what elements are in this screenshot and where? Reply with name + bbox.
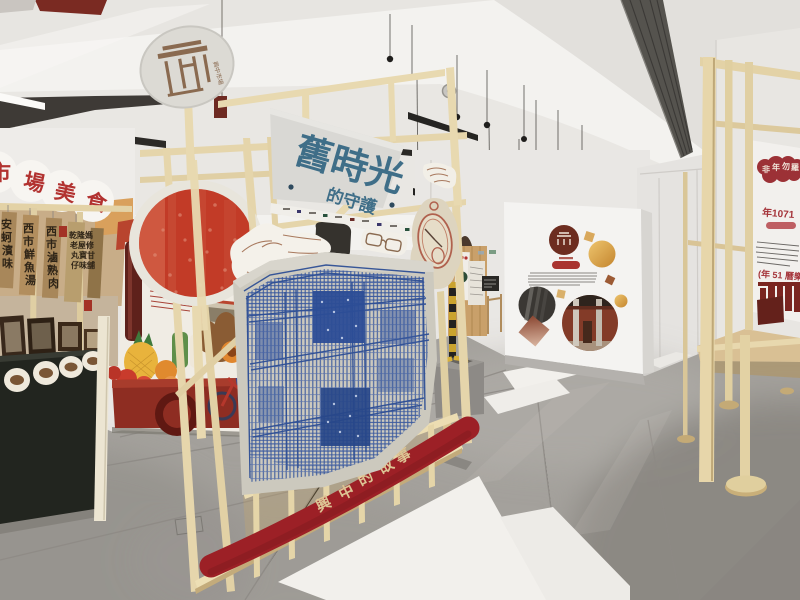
svg-text:味: 味 [2, 256, 13, 270]
svg-text:熟: 熟 [47, 263, 58, 277]
svg-text:老屋修: 老屋修 [69, 240, 95, 250]
svg-text:年: 年 [772, 162, 780, 172]
svg-text:丸寶甘: 丸寶甘 [70, 250, 95, 260]
svg-text:安: 安 [1, 217, 12, 231]
svg-text:仔味舖: 仔味舖 [71, 260, 95, 270]
svg-text:西: 西 [23, 222, 34, 235]
svg-text:鮮: 鮮 [24, 247, 35, 261]
svg-text:市: 市 [23, 234, 34, 248]
svg-text:羅: 羅 [791, 162, 799, 172]
svg-text:市: 市 [0, 161, 11, 185]
svg-text:滷: 滷 [47, 250, 58, 264]
svg-text:西: 西 [46, 225, 57, 238]
svg-text:非: 非 [762, 164, 770, 174]
svg-text:市: 市 [46, 237, 57, 251]
svg-text:湯: 湯 [25, 273, 36, 287]
svg-text:勿: 勿 [781, 161, 790, 171]
svg-text:乾隆媽: 乾隆媽 [69, 230, 93, 240]
svg-text:魚: 魚 [24, 260, 35, 274]
svg-text:濱: 濱 [2, 243, 13, 257]
svg-text:蚵: 蚵 [1, 230, 12, 244]
svg-text:肉: 肉 [48, 276, 59, 290]
